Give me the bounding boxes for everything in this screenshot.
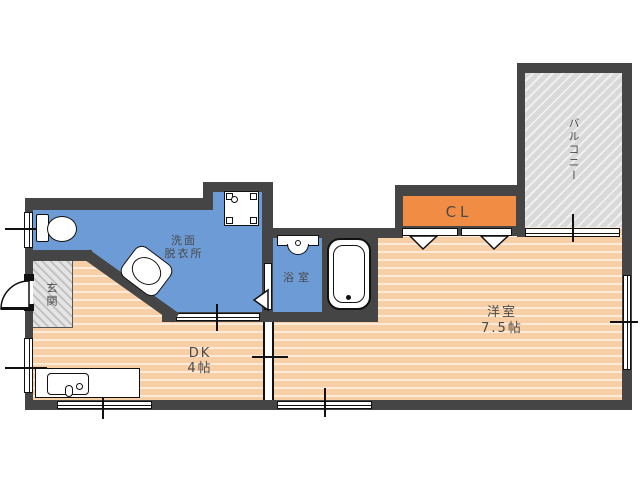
washing-machine-pan (224, 191, 259, 226)
bathtub (327, 238, 371, 310)
western-room-label: 洋室 7.5帖 (481, 305, 523, 337)
balcony-label: バルコニー (565, 118, 581, 183)
entrance-door-swing-arc (1, 281, 29, 309)
pan-corner (250, 193, 257, 200)
kitchen-faucet (65, 385, 73, 397)
washbasin-bowl (126, 251, 166, 290)
pan-drain (231, 196, 238, 203)
kitchen-counter (35, 368, 140, 398)
entrance-label: 玄関 (43, 282, 59, 308)
bathroom-label: 浴室 (283, 269, 313, 285)
kitchen-knob (76, 383, 83, 390)
bath-basin-dot (295, 240, 301, 246)
toilet-bowl (47, 216, 77, 242)
closet-door-swing-left (410, 236, 437, 249)
closet-door-swing-right (481, 236, 508, 249)
dk-label: DK 4帖 (187, 346, 212, 376)
pan-corner (226, 217, 233, 224)
closet-label: CL (446, 203, 473, 221)
plan-symbols (0, 0, 640, 480)
bathtub-drain (346, 295, 351, 300)
pan-corner (250, 217, 257, 224)
floorplan: 洗面 脱衣所 浴室 玄関 DK 4帖 洋室 7.5帖 CL バルコニー (0, 0, 640, 480)
bathroom-door-swing (254, 290, 268, 310)
washroom-label: 洗面 脱衣所 (165, 234, 204, 260)
